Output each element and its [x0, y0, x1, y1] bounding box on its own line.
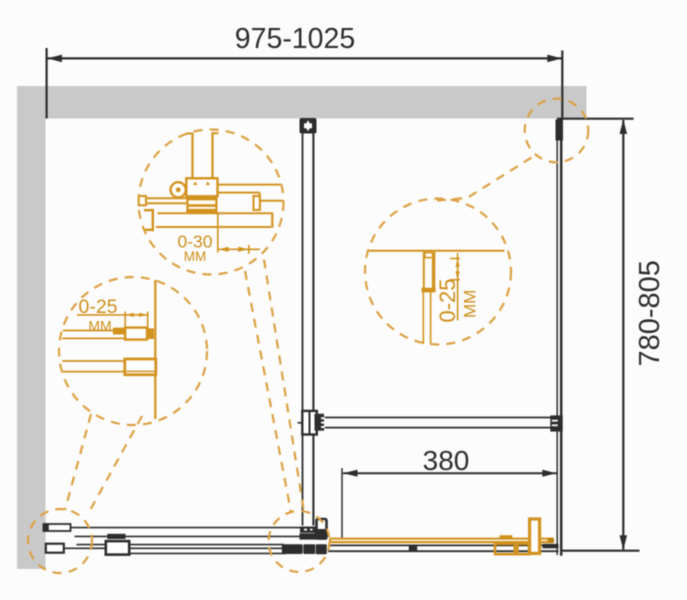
svg-text:0-25: 0-25	[78, 296, 117, 318]
svg-text:ММ: ММ	[88, 317, 111, 333]
svg-text:780-805: 780-805	[634, 260, 666, 366]
svg-text:975-1025: 975-1025	[235, 23, 355, 55]
svg-text:ММ: ММ	[461, 290, 480, 318]
svg-text:0-25: 0-25	[435, 278, 460, 322]
svg-text:ММ: ММ	[184, 249, 207, 264]
svg-text:380: 380	[423, 445, 470, 476]
